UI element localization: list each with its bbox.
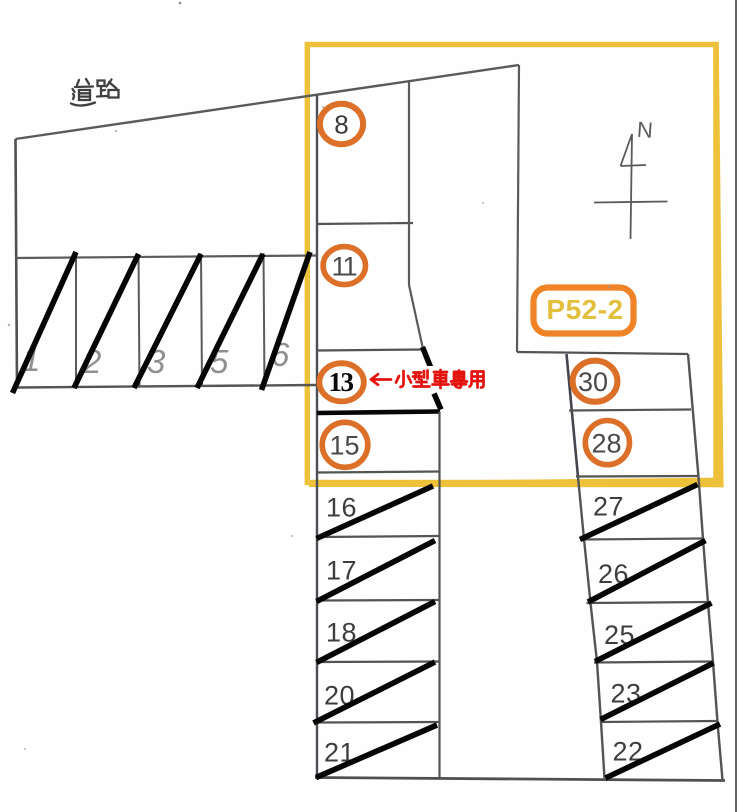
svg-text:P52-2: P52-2: [546, 294, 623, 325]
svg-text:30: 30: [578, 367, 608, 397]
svg-text:16: 16: [326, 493, 357, 523]
svg-text:13: 13: [329, 367, 354, 397]
svg-text:28: 28: [591, 428, 621, 458]
svg-text:8: 8: [334, 109, 348, 139]
svg-text:N: N: [636, 117, 654, 143]
svg-text:11: 11: [331, 251, 356, 281]
svg-text:27: 27: [593, 492, 624, 522]
svg-text:15: 15: [329, 431, 359, 461]
